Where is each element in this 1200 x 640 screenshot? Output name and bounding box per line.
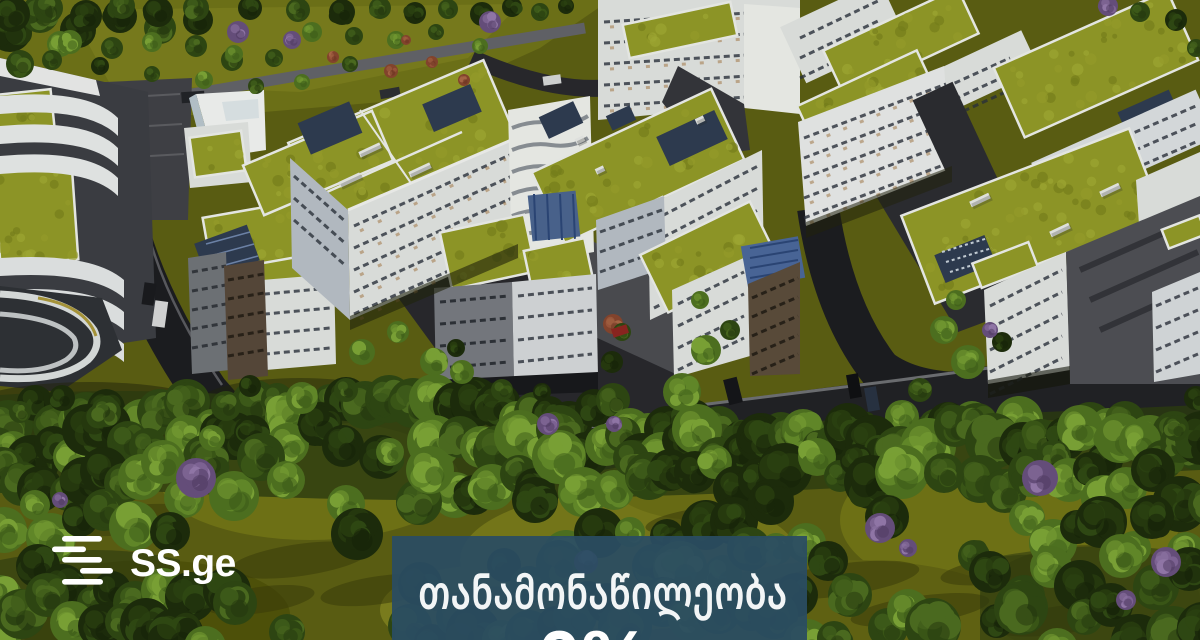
svg-text:SS.ge: SS.ge <box>130 542 236 585</box>
svg-text:0%: 0% <box>538 614 651 640</box>
